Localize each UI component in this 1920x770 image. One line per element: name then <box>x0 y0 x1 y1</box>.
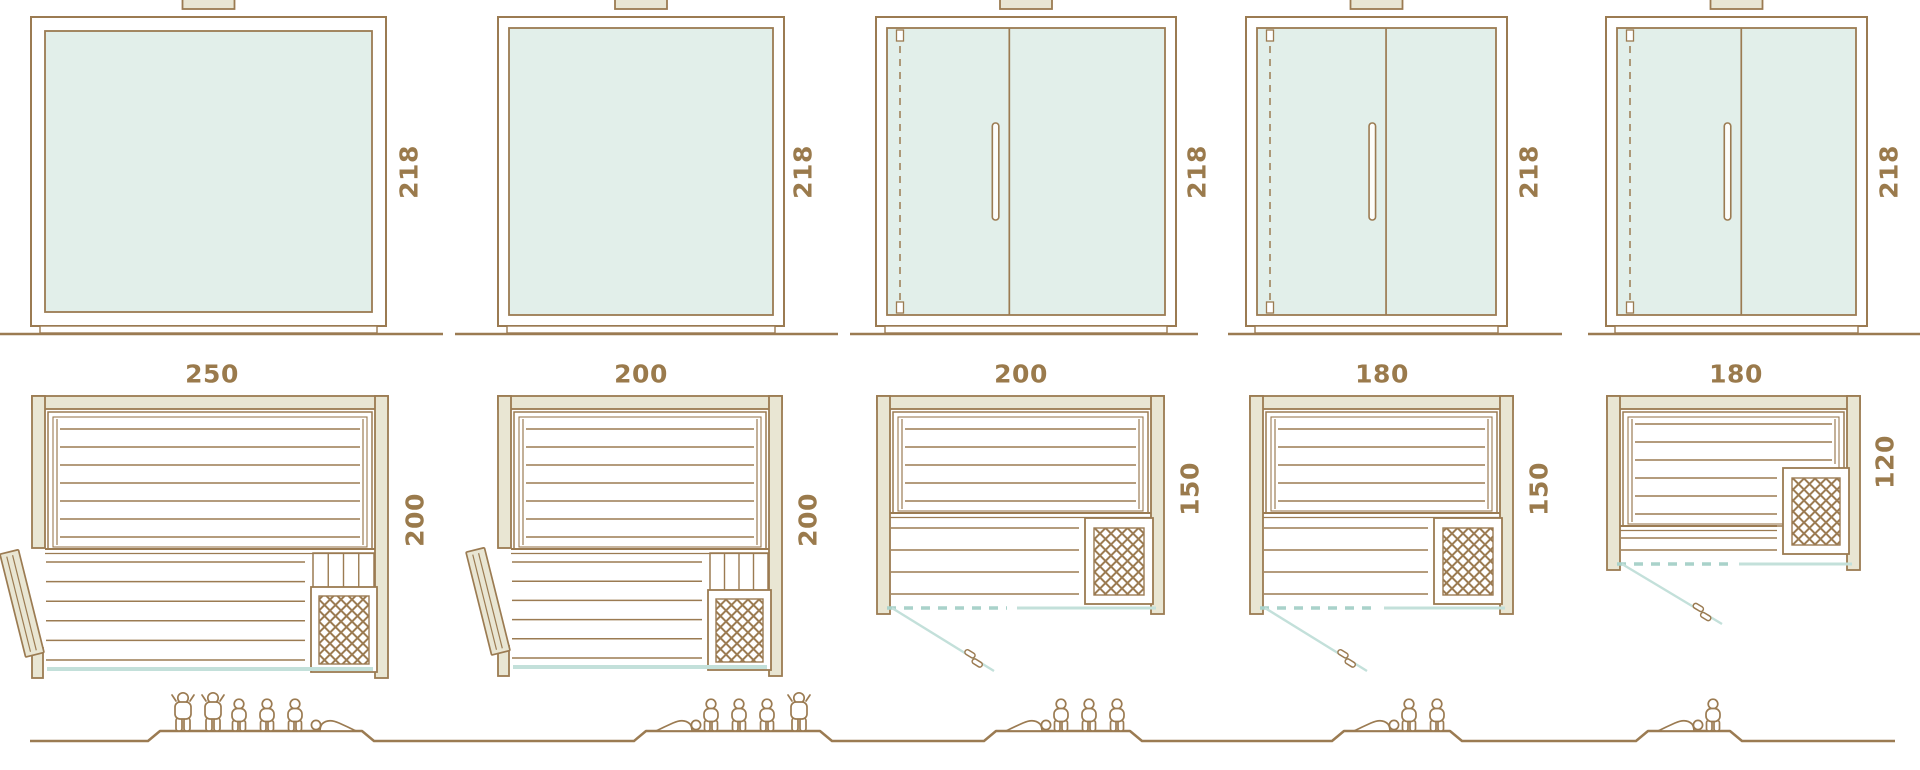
capacity-ground-line <box>30 731 1895 741</box>
wall-back <box>877 396 1164 409</box>
diagram-canvas <box>0 0 1920 770</box>
bench-rail-outer <box>514 412 766 549</box>
leg <box>184 718 190 731</box>
head <box>691 720 700 729</box>
bench-rail-inner <box>898 417 1143 511</box>
person-standing-icon <box>202 693 224 731</box>
door-leaf <box>466 548 510 655</box>
person-standing-icon <box>788 693 810 731</box>
front-height-label: 218 <box>789 145 818 199</box>
person-seated-icon <box>760 699 774 731</box>
front-height-label: 218 <box>1875 145 1904 199</box>
floor-plan <box>1250 396 1513 671</box>
door-leaf <box>0 550 44 657</box>
floor-plan <box>1607 396 1860 624</box>
floor-plan <box>466 396 782 676</box>
capacity-group <box>172 693 356 731</box>
person-seated-icon <box>1430 699 1444 731</box>
bench-rail-outer <box>893 412 1148 513</box>
head <box>1112 699 1122 709</box>
plan-depth-label: 150 <box>1176 462 1205 516</box>
torso <box>791 702 807 719</box>
person-lying-icon <box>311 720 356 731</box>
torso <box>288 709 302 722</box>
handle-lobe <box>971 658 983 668</box>
sill <box>1255 326 1498 333</box>
plan-depth-label: 200 <box>401 493 430 547</box>
wall-back <box>1607 396 1860 409</box>
person-seated-icon <box>1402 699 1416 731</box>
torso <box>232 709 246 722</box>
front-elevation <box>850 0 1198 334</box>
head <box>1708 699 1718 709</box>
door-handle <box>1724 123 1731 220</box>
leg <box>206 718 212 731</box>
head <box>311 720 320 729</box>
handle-lobe <box>1692 602 1704 612</box>
leg <box>792 718 798 731</box>
door-handle-plan-icon <box>962 649 985 668</box>
front-width-label: 180 <box>1355 360 1409 389</box>
head <box>1389 720 1398 729</box>
capacity-group <box>656 693 810 731</box>
glass-panel <box>1617 28 1856 315</box>
door-hinge-top <box>1267 30 1274 41</box>
person-lying-icon <box>656 720 701 731</box>
torso <box>175 702 191 719</box>
heater-grille <box>319 596 369 664</box>
body <box>1354 721 1390 731</box>
head <box>234 699 244 709</box>
person-seated-icon <box>1706 699 1720 731</box>
torso <box>1402 709 1416 722</box>
glass-panel <box>45 31 372 312</box>
wall-back <box>32 396 388 409</box>
person-lying-icon <box>1658 720 1703 731</box>
wall-left <box>498 396 511 548</box>
plan-depth-label: 150 <box>1525 462 1554 516</box>
door-hinge-bottom <box>897 302 904 313</box>
torso <box>1054 709 1068 722</box>
head <box>1084 699 1094 709</box>
heater-grille <box>1094 528 1144 595</box>
torso <box>704 709 718 722</box>
sill <box>40 326 377 333</box>
person-seated-icon <box>732 699 746 731</box>
person-seated-icon <box>1054 699 1068 731</box>
roof-vent-tab <box>1711 0 1763 9</box>
door-handle-plan-icon <box>1690 602 1713 621</box>
heater-grille <box>716 599 763 662</box>
front-width-label: 180 <box>1709 360 1763 389</box>
glass-panel <box>509 28 773 315</box>
head <box>262 699 272 709</box>
bench-rail-outer <box>1266 412 1497 513</box>
handle-lobe <box>1344 658 1356 668</box>
bench-rail-inner <box>519 417 761 547</box>
roof-vent-tab <box>1000 0 1052 9</box>
wall-left <box>1250 396 1263 614</box>
body <box>1658 721 1694 731</box>
floor-plan <box>877 396 1164 671</box>
front-width-label: 200 <box>994 360 1048 389</box>
capacity-group <box>1354 699 1444 731</box>
glass-panel <box>1257 28 1496 315</box>
heater-grille <box>1443 528 1493 595</box>
torso <box>1430 709 1444 722</box>
plan-depth-label: 120 <box>1871 435 1900 489</box>
front-elevation <box>0 0 443 334</box>
open-door-leaf <box>466 548 510 655</box>
torso <box>260 709 274 722</box>
person-seated-icon <box>1110 699 1124 731</box>
wall-left <box>877 396 890 614</box>
handle-lobe <box>1337 649 1349 659</box>
sill <box>1615 326 1858 333</box>
bench-rail-inner <box>1271 417 1492 511</box>
floor-plan <box>0 396 388 678</box>
wall-left <box>32 396 45 548</box>
front-elevation <box>1588 0 1920 334</box>
bench-rail-inner <box>53 417 367 547</box>
door-hinge-bottom <box>1267 302 1274 313</box>
person-standing-icon <box>172 693 194 731</box>
plan-depth-label: 200 <box>794 493 823 547</box>
open-door-leaf <box>0 550 44 657</box>
sauna-size-diagram: 250 200 200 180 180 218 218 218 218 218 … <box>0 0 1920 770</box>
person-seated-icon <box>232 699 246 731</box>
head <box>706 699 716 709</box>
glass-panel <box>887 28 1165 315</box>
sill <box>507 326 775 333</box>
roof-vent-tab <box>1351 0 1403 9</box>
person-seated-icon <box>260 699 274 731</box>
handle-lobe <box>964 649 976 659</box>
handle-lobe <box>1700 612 1712 622</box>
roof-vent-tab <box>615 0 667 9</box>
front-height-label: 218 <box>1183 145 1212 199</box>
person-seated-icon <box>1082 699 1096 731</box>
torso <box>1706 709 1720 722</box>
front-height-label: 218 <box>1515 145 1544 199</box>
door-hinge-bottom <box>1627 302 1634 313</box>
person-lying-icon <box>1006 720 1051 731</box>
roof-vent-tab <box>183 0 235 9</box>
wall-back <box>498 396 782 409</box>
person-seated-icon <box>704 699 718 731</box>
head <box>1404 699 1414 709</box>
head <box>290 699 300 709</box>
torso <box>760 709 774 722</box>
body <box>320 721 356 731</box>
head <box>1693 720 1702 729</box>
torso <box>1082 709 1096 722</box>
torso <box>732 709 746 722</box>
door-handle-plan-icon <box>1335 649 1358 668</box>
leg <box>214 718 220 731</box>
leg <box>800 718 806 731</box>
body <box>656 721 692 731</box>
head <box>1041 720 1050 729</box>
front-elevation <box>1228 0 1562 334</box>
sill <box>885 326 1167 333</box>
torso <box>1110 709 1124 722</box>
head <box>734 699 744 709</box>
door-handle <box>992 123 999 220</box>
capacity-group <box>1006 699 1124 731</box>
body <box>1006 721 1042 731</box>
head <box>1056 699 1066 709</box>
door-handle <box>1369 123 1376 220</box>
leg <box>176 718 182 731</box>
torso <box>205 702 221 719</box>
head <box>1432 699 1442 709</box>
person-seated-icon <box>288 699 302 731</box>
front-width-label: 250 <box>185 360 239 389</box>
door-hinge-top <box>897 30 904 41</box>
front-elevation <box>455 0 838 334</box>
person-lying-icon <box>1354 720 1399 731</box>
front-width-label: 200 <box>614 360 668 389</box>
head <box>762 699 772 709</box>
wall-back <box>1250 396 1513 409</box>
wall-left <box>1607 396 1620 570</box>
front-height-label: 218 <box>395 145 424 199</box>
heater-grille <box>1792 478 1840 545</box>
door-hinge-top <box>1627 30 1634 41</box>
bench-rail-outer <box>48 412 372 549</box>
capacity-group <box>1658 699 1720 731</box>
